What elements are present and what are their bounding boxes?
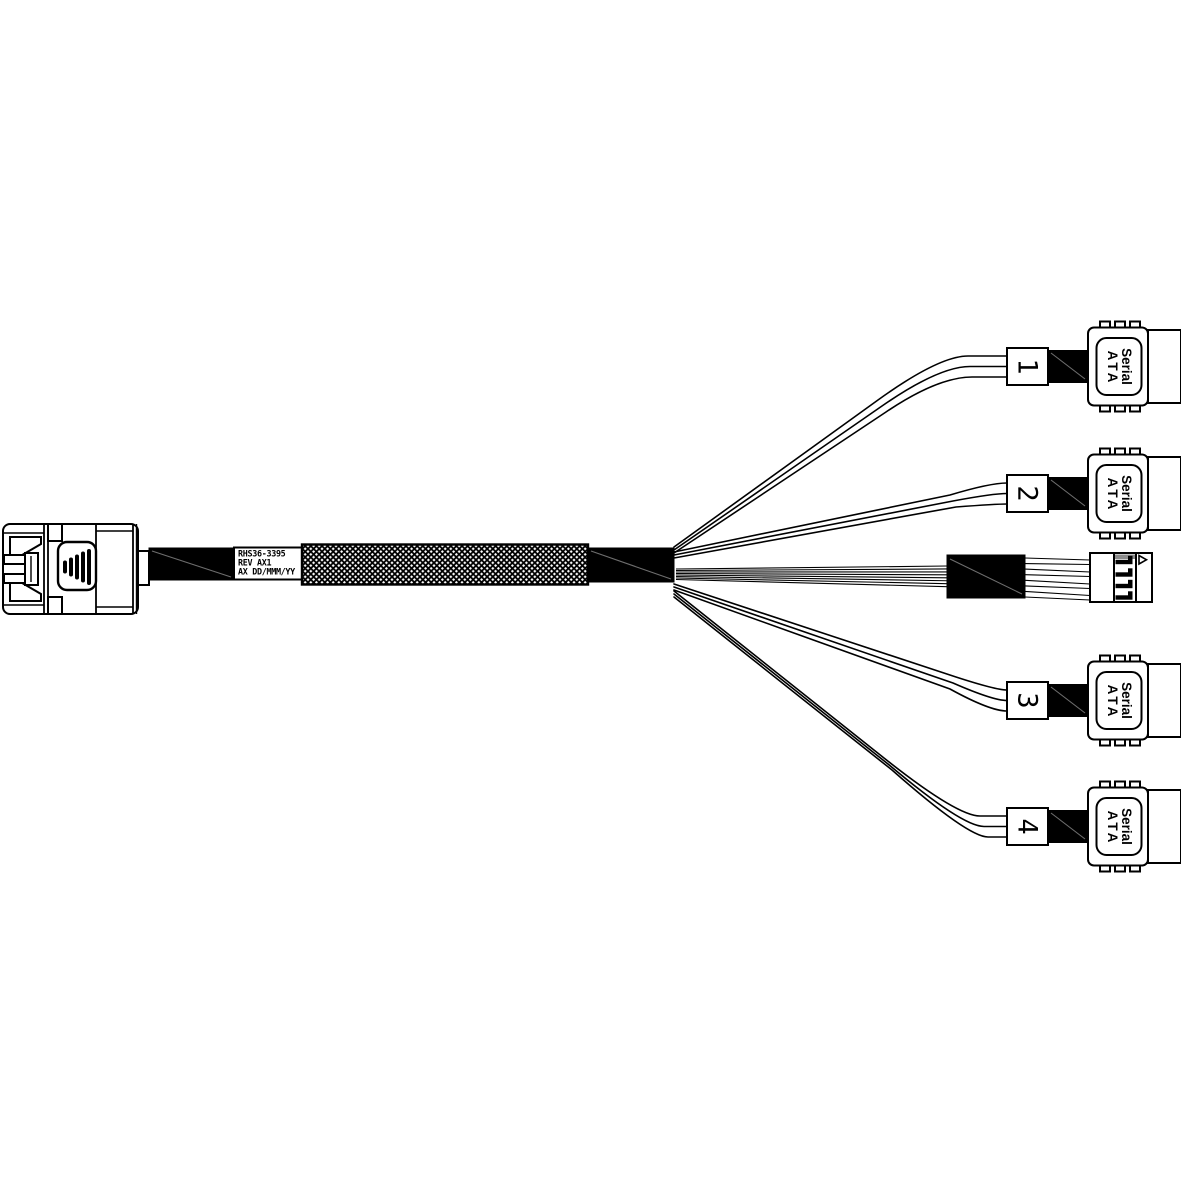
sata-plug-icon: Serial ATA: [1088, 782, 1181, 872]
sata-text-ata: ATA: [1105, 811, 1120, 846]
cable-label: RHS36-3395 REV AX1 AX DD/MMM/YY: [234, 548, 302, 580]
sideband-branch: [676, 553, 1152, 602]
cable-diagram: RHS36-3395 REV AX1 AX DD/MMM/YY 1 Seria: [0, 0, 1181, 1181]
mini-sas-plug-icon: [3, 524, 149, 614]
sideband-fan-wires: [1025, 558, 1090, 600]
cable-exit-boot: [138, 551, 149, 585]
branch-number: 2: [1011, 485, 1042, 501]
branch-number: 3: [1011, 692, 1042, 708]
sata-branch-3: 3 Serial ATA: [674, 584, 1181, 746]
sata-plug-icon: Serial ATA: [1088, 322, 1181, 412]
sata-text-ata: ATA: [1105, 685, 1120, 720]
sata-plug-icon: Serial ATA: [1088, 656, 1181, 746]
sideband-header-icon: [1090, 553, 1152, 602]
sata-plug-icon: Serial ATA: [1088, 449, 1181, 539]
branch-number: 4: [1011, 818, 1042, 834]
sata-text-ata: ATA: [1105, 478, 1120, 513]
cable-label-line3: AX DD/MMM/YY: [238, 567, 296, 577]
sata-text-serial: Serial: [1119, 348, 1134, 385]
sata-text-serial: Serial: [1119, 682, 1134, 719]
sata-text-serial: Serial: [1119, 808, 1134, 845]
sata-text-serial: Serial: [1119, 475, 1134, 512]
sata-text-ata: ATA: [1105, 351, 1120, 386]
braided-sleeve: [302, 545, 588, 585]
sideband-ribbon: [676, 566, 947, 587]
drawing-canvas: RHS36-3395 REV AX1 AX DD/MMM/YY 1 Seria: [0, 0, 1181, 1181]
branch-number: 1: [1011, 358, 1042, 374]
cable-trunk: RHS36-3395 REV AX1 AX DD/MMM/YY: [149, 545, 674, 585]
